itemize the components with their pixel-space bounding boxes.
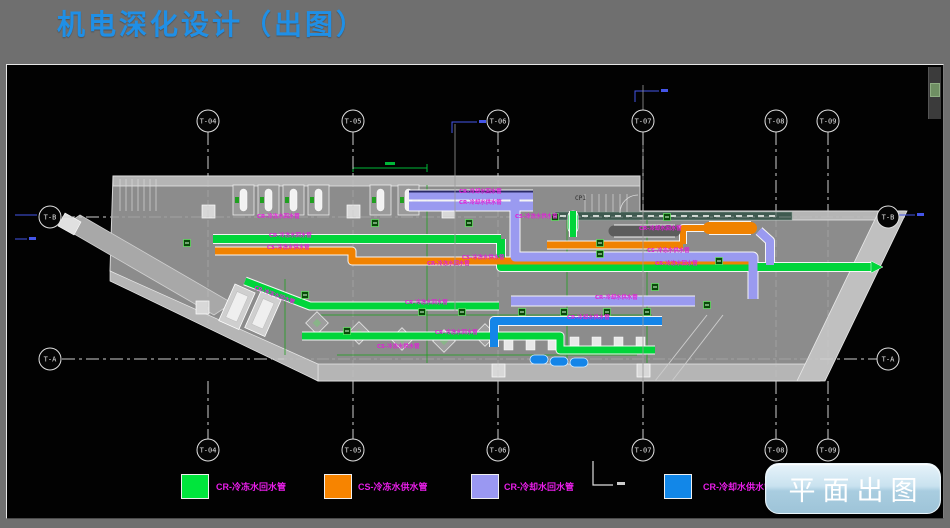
app-window: { "header": { "title": "机电深化设计（出图）" }, "… [0, 0, 950, 528]
page-title: 机电深化设计（出图） [57, 3, 367, 43]
plan-export-button[interactable]: 平面出图 [765, 463, 941, 514]
scrollbar-thumb[interactable] [930, 83, 940, 97]
svg-text:T-08: T-08 [768, 118, 785, 126]
svg-text:T-09: T-09 [820, 118, 837, 126]
svg-text:T-07: T-07 [635, 447, 652, 455]
legend-label: CR-冷却水回水管 [504, 480, 574, 493]
svg-text:T-04: T-04 [200, 118, 217, 126]
legend-swatch-cooling-supply [664, 474, 692, 499]
vertical-scrollbar[interactable] [928, 67, 941, 119]
svg-text:CP1: CP1 [575, 195, 586, 202]
svg-text:T-05: T-05 [345, 447, 362, 455]
svg-text:CR-冷冻水回水管: CR-冷冻水回水管 [655, 259, 698, 267]
legend-label: CR-冷冻水回水管 [216, 480, 286, 493]
svg-text:CR-冷冻水回水管: CR-冷冻水回水管 [435, 328, 478, 336]
svg-text:CS-冷冻水供水管: CS-冷冻水供水管 [462, 253, 505, 261]
legend-label: CR-冷却水供水管 [703, 480, 773, 493]
cad-drawing: CR-冷冻水回水管CR-冷冻水回水管CR-冷冻水回水管CR-冷冻水回水管CS-冷… [7, 65, 943, 518]
svg-text:T-A: T-A [44, 356, 57, 364]
svg-text:CR-冷却水回水管: CR-冷却水回水管 [639, 224, 682, 232]
legend-item [664, 474, 692, 499]
svg-text:T-08: T-08 [768, 447, 785, 455]
svg-text:CS-冷冻水供水管: CS-冷冻水供水管 [377, 342, 420, 350]
svg-text:CR-冷冻水回水管: CR-冷冻水回水管 [405, 298, 448, 306]
legend-item [471, 474, 499, 499]
svg-text:T-04: T-04 [200, 447, 217, 455]
cad-viewport[interactable]: CR-冷冻水回水管CR-冷冻水回水管CR-冷冻水回水管CR-冷冻水回水管CS-冷… [6, 64, 944, 519]
svg-text:T-07: T-07 [635, 118, 652, 126]
svg-text:CR-冷却水供水管: CR-冷却水供水管 [459, 198, 502, 206]
svg-text:CS-冷冻水供水管: CS-冷冻水供水管 [267, 243, 310, 251]
svg-text:T-05: T-05 [345, 118, 362, 126]
legend-item [324, 474, 352, 499]
legend-label: CS-冷冻水供水管 [358, 480, 428, 493]
legend-swatch-chilled-supply [324, 474, 352, 499]
legend-swatch-chilled-return [181, 474, 209, 499]
svg-text:CS-冷冻水供水管: CS-冷冻水供水管 [515, 212, 558, 220]
svg-text:CS-冷冻水供水管: CS-冷冻水供水管 [647, 246, 690, 254]
svg-text:T-06: T-06 [490, 447, 507, 455]
svg-text:CR-冷却水供水管: CR-冷却水供水管 [595, 293, 638, 301]
svg-text:T-06: T-06 [490, 118, 507, 126]
legend-swatch-cooling-return [471, 474, 499, 499]
svg-text:T-B: T-B [44, 214, 57, 222]
svg-text:T-B: T-B [882, 214, 895, 222]
svg-text:T-A: T-A [882, 356, 895, 364]
svg-text:CR-冷却水回水管: CR-冷却水回水管 [459, 187, 502, 195]
svg-text:T-09: T-09 [820, 447, 837, 455]
svg-text:CR-冷却水供水管: CR-冷却水供水管 [567, 313, 610, 321]
legend-item [181, 474, 209, 499]
svg-text:CR-冷冻水回水管: CR-冷冻水回水管 [269, 231, 312, 239]
svg-text:CR-冷冻水回水管: CR-冷冻水回水管 [257, 212, 300, 220]
